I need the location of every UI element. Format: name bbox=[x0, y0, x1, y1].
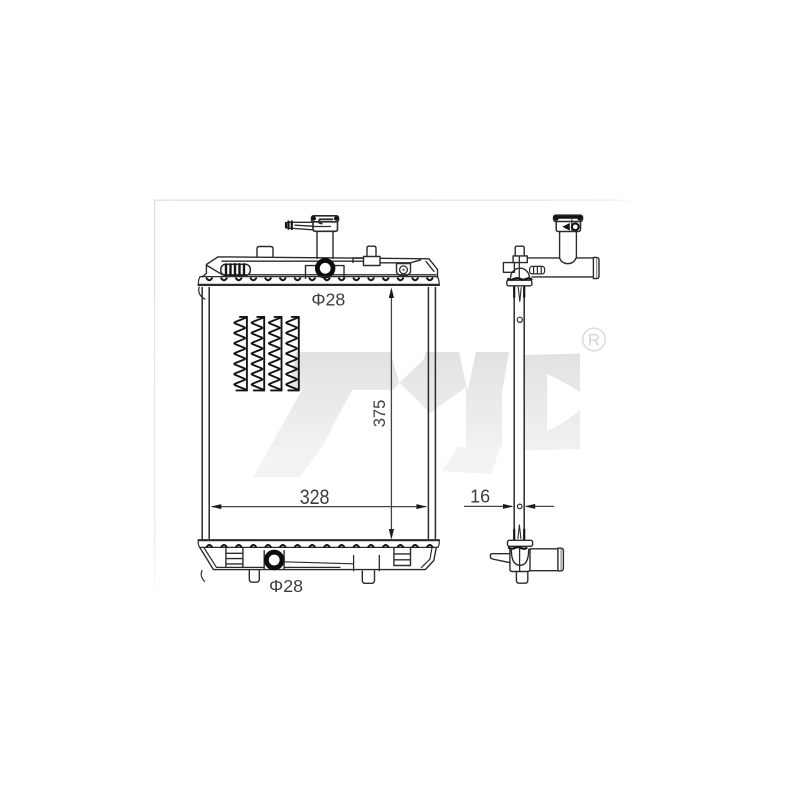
svg-text:328: 328 bbox=[300, 485, 330, 509]
svg-text:Φ28: Φ28 bbox=[311, 290, 345, 310]
svg-text:16: 16 bbox=[470, 486, 490, 506]
svg-text:Φ28: Φ28 bbox=[269, 576, 303, 596]
svg-text:R: R bbox=[588, 331, 600, 350]
svg-text:375: 375 bbox=[371, 400, 389, 428]
